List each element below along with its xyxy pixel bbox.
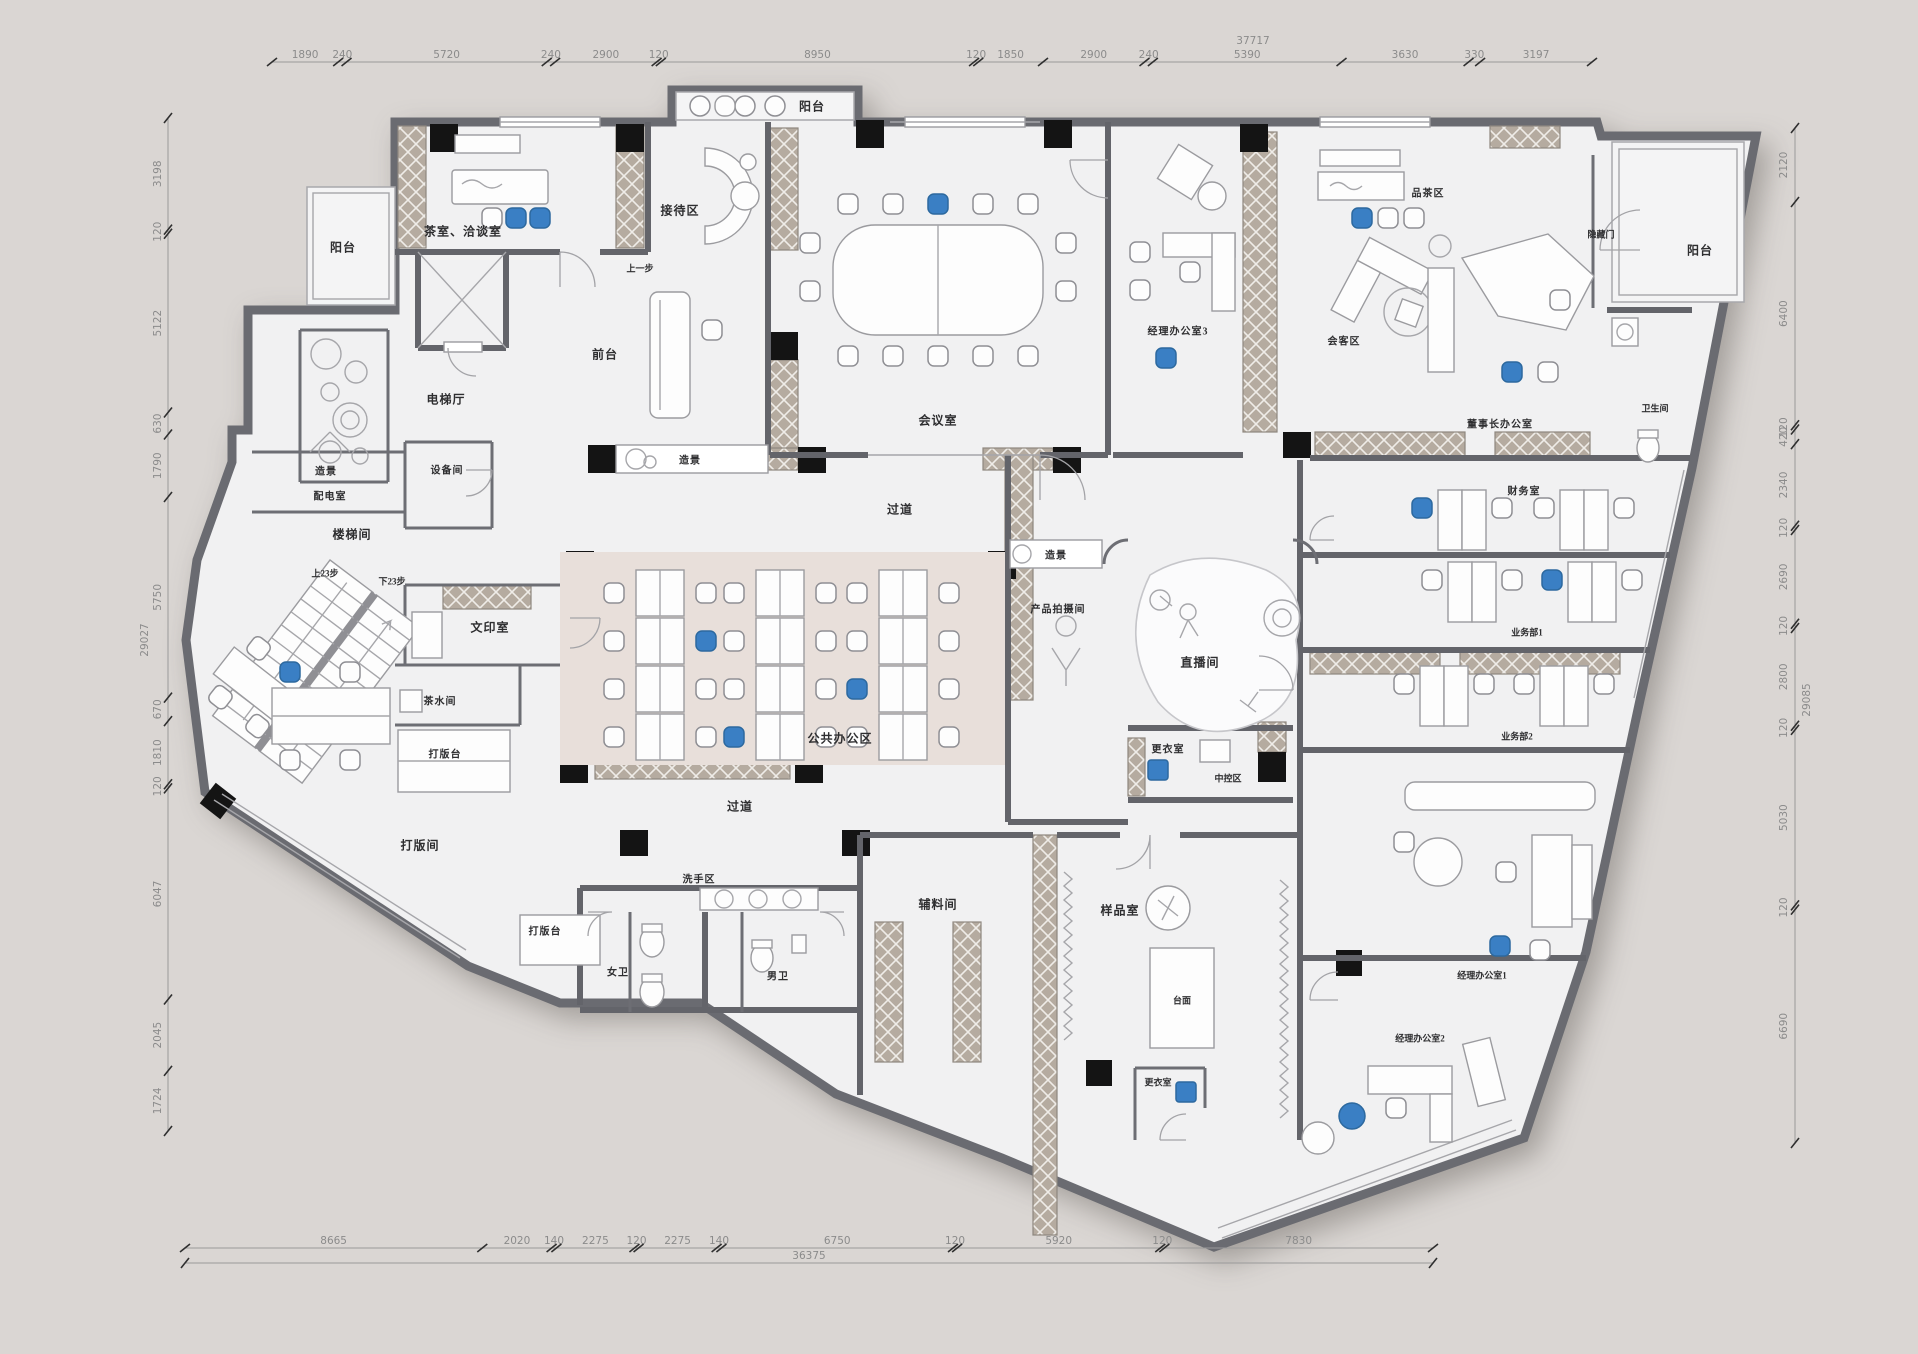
svg-text:120: 120 <box>1778 897 1790 917</box>
svg-text:29027: 29027 <box>139 623 151 656</box>
svg-text:330: 330 <box>1464 49 1484 61</box>
label-manager-3: 经理办公室3 <box>1148 323 1209 338</box>
label-hidden-door: 隐藏门 <box>1587 228 1614 241</box>
svg-text:2900: 2900 <box>593 49 620 61</box>
label-front-desk: 前台 <box>592 346 618 363</box>
svg-text:120: 120 <box>966 49 986 61</box>
label-down-23: 下23步 <box>378 575 405 588</box>
label-tea-area: 品茶区 <box>1412 185 1445 200</box>
svg-text:6690: 6690 <box>1778 1013 1790 1040</box>
svg-text:3197: 3197 <box>1523 49 1550 61</box>
label-balcony-topright: 阳台 <box>1687 242 1713 259</box>
label-sample-room: 样品室 <box>1100 902 1139 919</box>
svg-text:3198: 3198 <box>152 160 164 187</box>
label-step-note: 上一步 <box>626 262 653 275</box>
svg-text:1790: 1790 <box>152 452 164 479</box>
svg-text:5750: 5750 <box>152 584 164 611</box>
svg-text:1810: 1810 <box>152 739 164 766</box>
svg-text:7830: 7830 <box>1285 1235 1312 1247</box>
label-balcony-left: 阳台 <box>330 239 356 256</box>
svg-text:37717: 37717 <box>1236 35 1269 47</box>
svg-text:3630: 3630 <box>1392 49 1419 61</box>
svg-text:2275: 2275 <box>582 1235 609 1247</box>
label-live-room: 直播间 <box>1180 654 1219 671</box>
svg-text:120: 120 <box>152 222 164 242</box>
floor-plan-drawing: 1890240572024029001208950120185029002405… <box>0 0 1918 1354</box>
label-guest-area: 会客区 <box>1328 333 1361 348</box>
floor-plan: 1890240572024029001208950120185029002405… <box>0 0 1918 1354</box>
label-sales-2: 业务部2 <box>1501 730 1533 743</box>
svg-text:2340: 2340 <box>1778 472 1790 499</box>
label-pantry: 茶水间 <box>424 693 457 708</box>
label-toilet-tr: 卫生间 <box>1641 402 1668 415</box>
svg-text:420: 420 <box>1778 427 1790 447</box>
label-counter-top: 台面 <box>1173 994 1191 1007</box>
label-print-room: 文印室 <box>470 619 509 636</box>
svg-text:120: 120 <box>649 49 669 61</box>
label-finance: 财务室 <box>1508 483 1541 498</box>
label-elevator-hall: 电梯厅 <box>426 391 465 408</box>
label-equipment-room: 设备间 <box>431 462 464 477</box>
svg-text:5030: 5030 <box>1778 804 1790 831</box>
label-balcony-top: 阳台 <box>799 98 825 115</box>
label-sales-1: 业务部1 <box>1511 626 1543 639</box>
label-meeting-room: 会议室 <box>918 412 957 429</box>
svg-text:6750: 6750 <box>824 1235 851 1247</box>
label-landscape-center: 造景 <box>679 452 701 467</box>
label-corridor-2: 过道 <box>727 798 753 815</box>
label-womens-toilet: 女卫 <box>607 964 629 979</box>
svg-text:6047: 6047 <box>152 881 164 908</box>
svg-text:120: 120 <box>945 1235 965 1247</box>
label-landscape-right: 造景 <box>1045 547 1067 562</box>
svg-text:2045: 2045 <box>152 1022 164 1049</box>
svg-text:1890: 1890 <box>292 49 319 61</box>
label-manager-1: 经理办公室1 <box>1457 969 1507 982</box>
svg-text:1850: 1850 <box>997 49 1024 61</box>
label-open-office: 公共办公区 <box>807 730 872 747</box>
svg-text:670: 670 <box>152 699 164 719</box>
balcony-top-center <box>676 92 854 120</box>
label-dressing-2: 更衣室 <box>1144 1076 1171 1089</box>
svg-text:630: 630 <box>152 414 164 434</box>
svg-text:5920: 5920 <box>1045 1235 1072 1247</box>
svg-text:2020: 2020 <box>504 1235 531 1247</box>
svg-text:2275: 2275 <box>664 1235 691 1247</box>
label-power-room: 配电室 <box>314 488 347 503</box>
svg-text:6400: 6400 <box>1778 300 1790 327</box>
svg-text:120: 120 <box>1778 718 1790 738</box>
svg-text:1724: 1724 <box>152 1087 164 1114</box>
label-wash-area: 洗手区 <box>683 871 716 886</box>
open-office-area <box>560 552 1005 765</box>
label-mens-toilet: 男卫 <box>767 968 789 983</box>
label-manager-2: 经理办公室2 <box>1395 1032 1445 1045</box>
label-corridor-1: 过道 <box>887 501 913 518</box>
label-tea-room: 茶室、洽谈室 <box>424 223 502 240</box>
live-room <box>1136 558 1300 731</box>
label-aux-room: 辅料间 <box>918 896 957 913</box>
label-pattern-room: 打版间 <box>400 837 439 854</box>
label-dressing-1: 更衣室 <box>1152 741 1185 756</box>
label-pattern-table-1: 打版台 <box>429 746 462 761</box>
label-product-photo: 产品拍摄间 <box>1031 601 1086 616</box>
svg-text:120: 120 <box>626 1235 646 1247</box>
svg-text:29085: 29085 <box>1801 683 1813 716</box>
balcony-top-right <box>1612 142 1744 302</box>
svg-text:8665: 8665 <box>320 1235 347 1247</box>
svg-text:2690: 2690 <box>1778 564 1790 591</box>
label-control-area: 中控区 <box>1214 772 1241 785</box>
svg-text:5122: 5122 <box>152 310 164 337</box>
svg-text:5390: 5390 <box>1234 49 1261 61</box>
label-landscape-left: 造景 <box>315 463 337 478</box>
label-pattern-table-2: 打版台 <box>529 923 562 938</box>
label-stair-room: 楼梯间 <box>332 526 371 543</box>
label-up-23: 上23步 <box>311 567 338 580</box>
svg-text:36375: 36375 <box>792 1250 825 1262</box>
svg-text:2800: 2800 <box>1778 663 1790 690</box>
svg-text:120: 120 <box>1152 1235 1172 1247</box>
svg-text:2120: 2120 <box>1778 152 1790 179</box>
label-reception: 接待区 <box>660 202 699 219</box>
svg-text:2900: 2900 <box>1080 49 1107 61</box>
svg-text:8950: 8950 <box>804 49 831 61</box>
svg-text:120: 120 <box>152 776 164 796</box>
label-chairman: 董事长办公室 <box>1467 416 1533 431</box>
svg-text:120: 120 <box>1778 616 1790 636</box>
svg-text:5720: 5720 <box>433 49 460 61</box>
svg-text:120: 120 <box>1778 518 1790 538</box>
